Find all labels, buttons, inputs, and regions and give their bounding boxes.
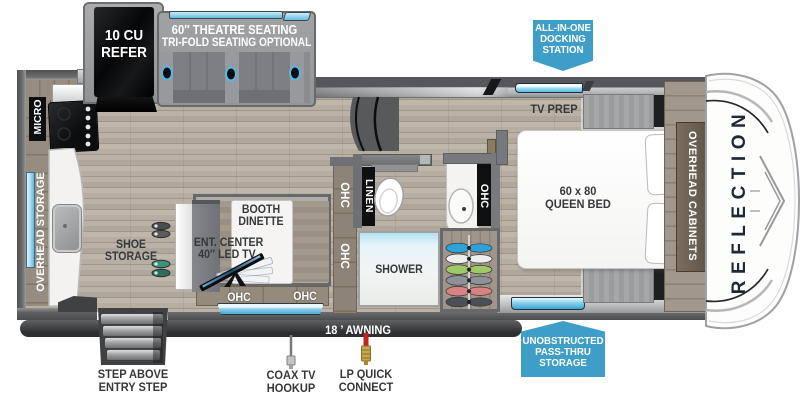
svg-text:REFLECTION: REFLECTION: [729, 108, 750, 294]
